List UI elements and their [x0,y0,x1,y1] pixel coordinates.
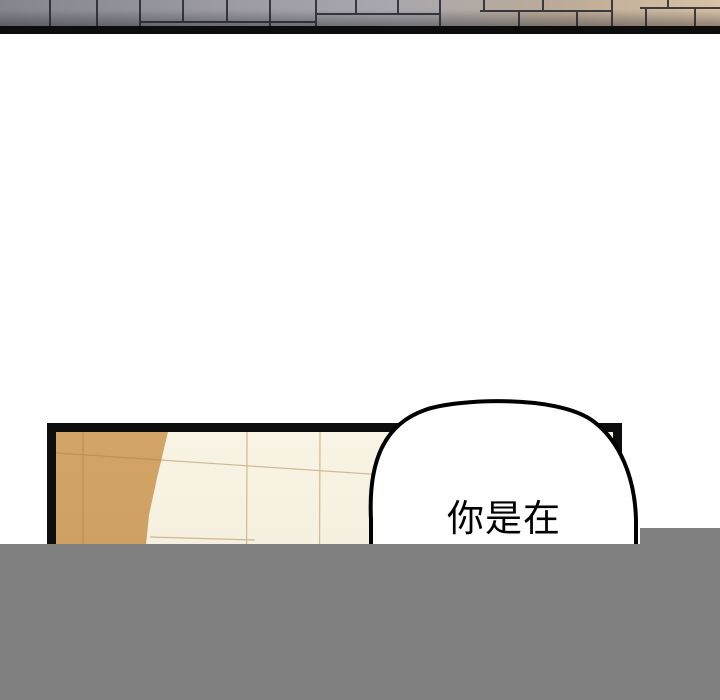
top-panel-bottom-border [0,26,720,34]
speech-bubble-text: 你是在 [447,497,561,540]
unloaded-gray-block-main [0,544,720,700]
comic-reader-viewport: 你是在 [0,0,720,700]
unloaded-image-overlay [0,528,720,700]
comic-page-canvas: 你是在 [0,0,720,700]
speech-bubble: 你是在 [371,401,636,560]
pavement-shadow [0,0,720,27]
top-panel-pavement [0,0,720,34]
